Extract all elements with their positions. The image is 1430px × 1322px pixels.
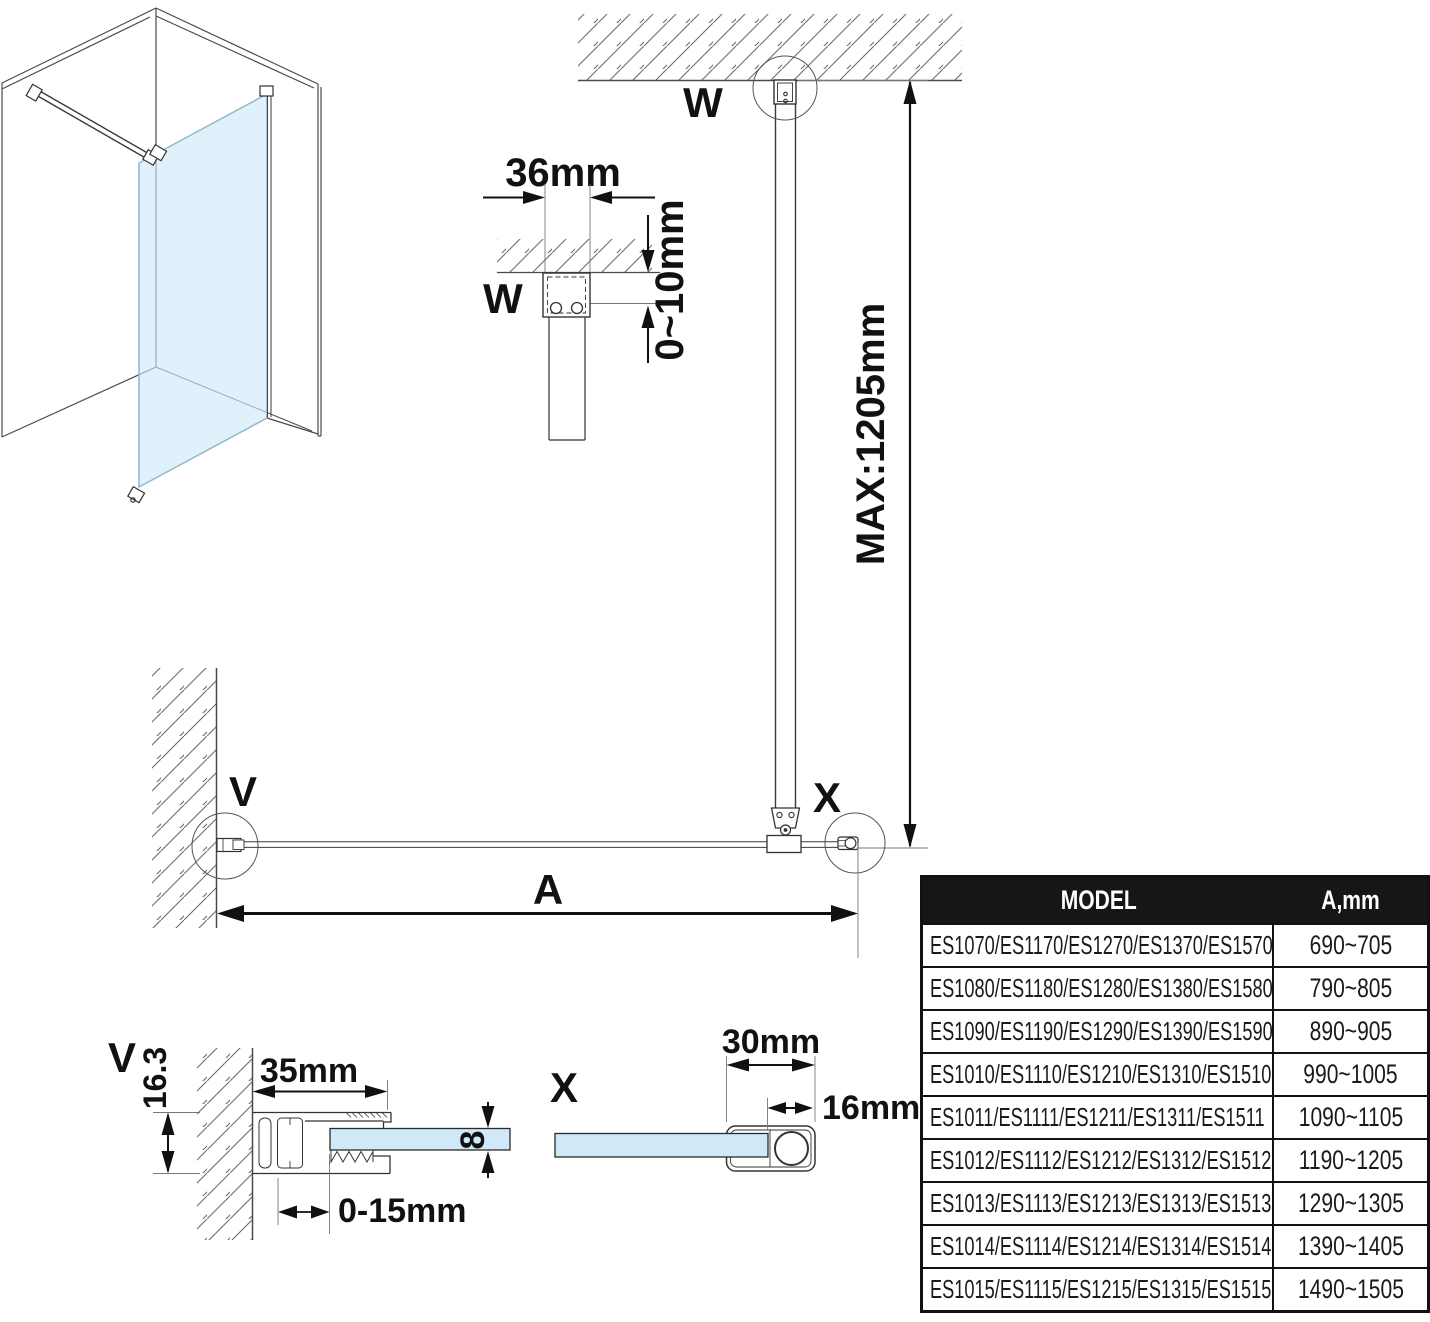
iso-left-wall — [2, 8, 156, 437]
model-cell: ES1012/ES1112/ES1212/ES1312/ES1512 — [930, 1145, 1271, 1176]
a-cell: 990~1005 — [1303, 1059, 1397, 1090]
table-row: ES1010/ES1110/ES1210/ES1310/ES1510 990~1… — [923, 1052, 1427, 1095]
iso-view — [2, 8, 321, 503]
model-cell: ES1080/ES1180/ES1280/ES1380/ES1580 — [930, 973, 1273, 1004]
detail-w-bracket — [543, 273, 590, 317]
dim-glass-thickness-label: 8 — [454, 1131, 492, 1150]
a-cell: 1490~1505 — [1297, 1274, 1403, 1305]
iso-glass-foot — [128, 487, 145, 503]
plan-end-cap — [838, 837, 858, 850]
model-cell: ES1090/ES1190/ES1290/ES1390/ES1590 — [930, 1016, 1273, 1047]
elevation-view: W MAX:1205mm — [578, 14, 962, 848]
model-table-header-a: A,mm — [1274, 878, 1427, 923]
iso-profile-top-fitting — [260, 86, 273, 96]
dim-profile-height-label: 16.3 — [137, 1047, 173, 1109]
dim-wall-adjust: 0-15mm — [278, 1154, 467, 1234]
detail-w-ceiling-hatch — [497, 239, 652, 272]
table-row: ES1011/ES1111/ES1211/ES1311/ES1511 1090~… — [923, 1095, 1427, 1138]
dim-glass-thickness: 8 — [454, 1102, 495, 1178]
plan-wall-fitting — [217, 839, 244, 852]
dim-top-gap-label: 0~10mm — [648, 199, 692, 360]
model-table-header-model: MODEL — [923, 878, 1274, 923]
model-cell: ES1015/ES1115/ES1215/ES1315/ES1515 — [930, 1274, 1271, 1305]
table-row: ES1090/ES1190/ES1290/ES1390/ES1590 890~9… — [923, 1009, 1427, 1052]
a-header-label: A,mm — [1321, 885, 1380, 916]
a-cell: 690~705 — [1309, 930, 1392, 961]
detail-x-view: X 30mm 16mm — [550, 1023, 920, 1171]
model-cell: ES1011/ES1111/ES1211/ES1311/ES1511 — [930, 1102, 1265, 1133]
detail-w-view: 36mm 0~10mm W — [483, 151, 692, 440]
plan-wall-hatch — [152, 668, 216, 928]
label-v-detail: V — [108, 1034, 136, 1081]
label-x-plan: X — [813, 774, 841, 821]
dim-end-cap-inner-label: 16mm — [822, 1089, 920, 1127]
table-row: ES1013/ES1113/ES1213/ES1313/ES1513 1290~… — [923, 1181, 1427, 1224]
dim-max-height-label: MAX:1205mm — [849, 303, 893, 565]
model-cell: ES1013/ES1113/ES1213/ES1313/ES1513 — [930, 1188, 1271, 1219]
dim-max-height: MAX:1205mm — [798, 80, 928, 848]
model-header-label: MODEL — [1060, 885, 1136, 916]
model-cell: ES1014/ES1114/ES1214/ES1314/ES1514 — [930, 1231, 1271, 1262]
ceiling-bracket — [774, 80, 796, 104]
ceiling-hatch — [578, 14, 962, 80]
table-row: ES1015/ES1115/ES1215/ES1315/ES1515 1490~… — [923, 1267, 1427, 1310]
table-row: ES1070/ES1170/ES1270/ES1370/ES1570 690~7… — [923, 923, 1427, 966]
installation-diagram-page: W MAX:1205mm 36mm — [0, 0, 1430, 1322]
model-table: MODEL A,mm ES1070/ES1170/ES1270/ES1370/E… — [920, 875, 1430, 1313]
model-table-header: MODEL A,mm — [923, 878, 1427, 923]
detail-v-view: V 16.3 35mm — [108, 1034, 510, 1240]
dim-profile-width: 35mm — [253, 1052, 388, 1110]
model-cell: ES1010/ES1110/ES1210/ES1310/ES1510 — [930, 1059, 1271, 1090]
a-cell: 1390~1405 — [1297, 1231, 1403, 1262]
plan-bar-junction — [767, 808, 801, 853]
label-w-detail: W — [483, 275, 523, 322]
detail-v-wall-hatch — [197, 1048, 252, 1240]
iso-wall-profile — [268, 95, 272, 418]
a-cell: 890~905 — [1309, 1016, 1392, 1047]
dim-end-cap-inner: 16mm — [768, 1089, 921, 1130]
dim-profile-height-arrows — [153, 1113, 200, 1174]
support-bar — [776, 104, 796, 808]
label-v-plan: V — [229, 768, 257, 815]
dim-wall-adjust-label: 0-15mm — [338, 1192, 467, 1230]
iso-support-bar — [36, 90, 151, 160]
table-row: ES1012/ES1112/ES1212/ES1312/ES1512 1190~… — [923, 1138, 1427, 1181]
label-x-detail: X — [550, 1064, 578, 1111]
table-row: ES1080/ES1180/ES1280/ES1380/ES1580 790~8… — [923, 966, 1427, 1009]
dim-top-width-label: 36mm — [505, 151, 621, 195]
table-row: ES1014/ES1114/ES1214/ES1314/ES1514 1390~… — [923, 1224, 1427, 1267]
label-w-elevation: W — [683, 79, 723, 126]
iso-bar-wall-anchor — [26, 84, 42, 101]
dim-a: A — [217, 866, 858, 922]
a-cell: 1090~1105 — [1298, 1102, 1402, 1133]
detail-x-glass — [555, 1134, 768, 1158]
dim-profile-width-label: 35mm — [260, 1052, 358, 1090]
a-cell: 790~805 — [1309, 973, 1392, 1004]
dim-end-cap-width-label: 30mm — [722, 1023, 820, 1061]
dim-a-label: A — [533, 866, 563, 913]
a-cell: 1190~1205 — [1298, 1145, 1402, 1176]
model-cell: ES1070/ES1170/ES1270/ES1370/ES1570 — [930, 930, 1273, 961]
plan-glass — [240, 842, 842, 848]
a-cell: 1290~1305 — [1297, 1188, 1403, 1219]
detail-w-bar — [549, 317, 585, 440]
